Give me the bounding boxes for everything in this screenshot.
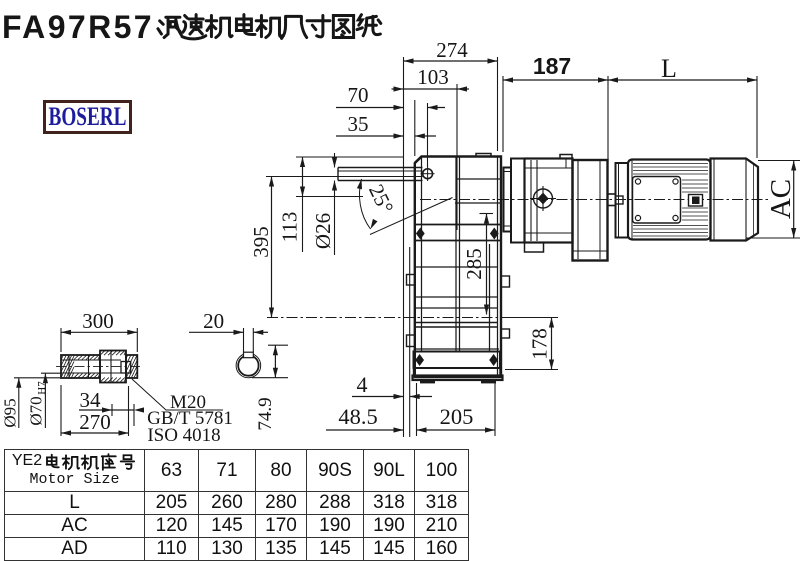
- svg-text:300: 300: [82, 309, 114, 333]
- svg-text:34: 34: [80, 388, 102, 412]
- svg-text:395: 395: [249, 226, 273, 258]
- svg-text:270: 270: [79, 410, 111, 434]
- svg-text:103: 103: [417, 65, 449, 89]
- svg-text:48.5: 48.5: [338, 404, 377, 429]
- svg-text:Ø70: Ø70: [27, 396, 46, 425]
- svg-text:187: 187: [533, 53, 571, 79]
- svg-text:BOSERL: BOSERL: [49, 103, 127, 131]
- svg-text:20: 20: [203, 309, 224, 333]
- svg-text:74.9: 74.9: [255, 397, 276, 430]
- svg-text:L: L: [661, 54, 677, 83]
- svg-text:25°: 25°: [364, 180, 398, 217]
- svg-text:113: 113: [278, 212, 302, 243]
- svg-text:274: 274: [436, 38, 468, 62]
- svg-text:H7: H7: [36, 381, 48, 395]
- svg-text:285: 285: [462, 248, 486, 280]
- svg-text:70: 70: [348, 83, 369, 107]
- svg-text:178: 178: [528, 328, 552, 360]
- svg-text:Ø26: Ø26: [311, 213, 335, 249]
- svg-text:Ø95: Ø95: [1, 398, 20, 427]
- svg-text:ISO 4018: ISO 4018: [147, 425, 220, 446]
- svg-text:AC: AC: [765, 179, 797, 219]
- svg-text:205: 205: [440, 404, 474, 429]
- svg-text:35: 35: [348, 112, 369, 136]
- svg-text:4: 4: [357, 372, 368, 397]
